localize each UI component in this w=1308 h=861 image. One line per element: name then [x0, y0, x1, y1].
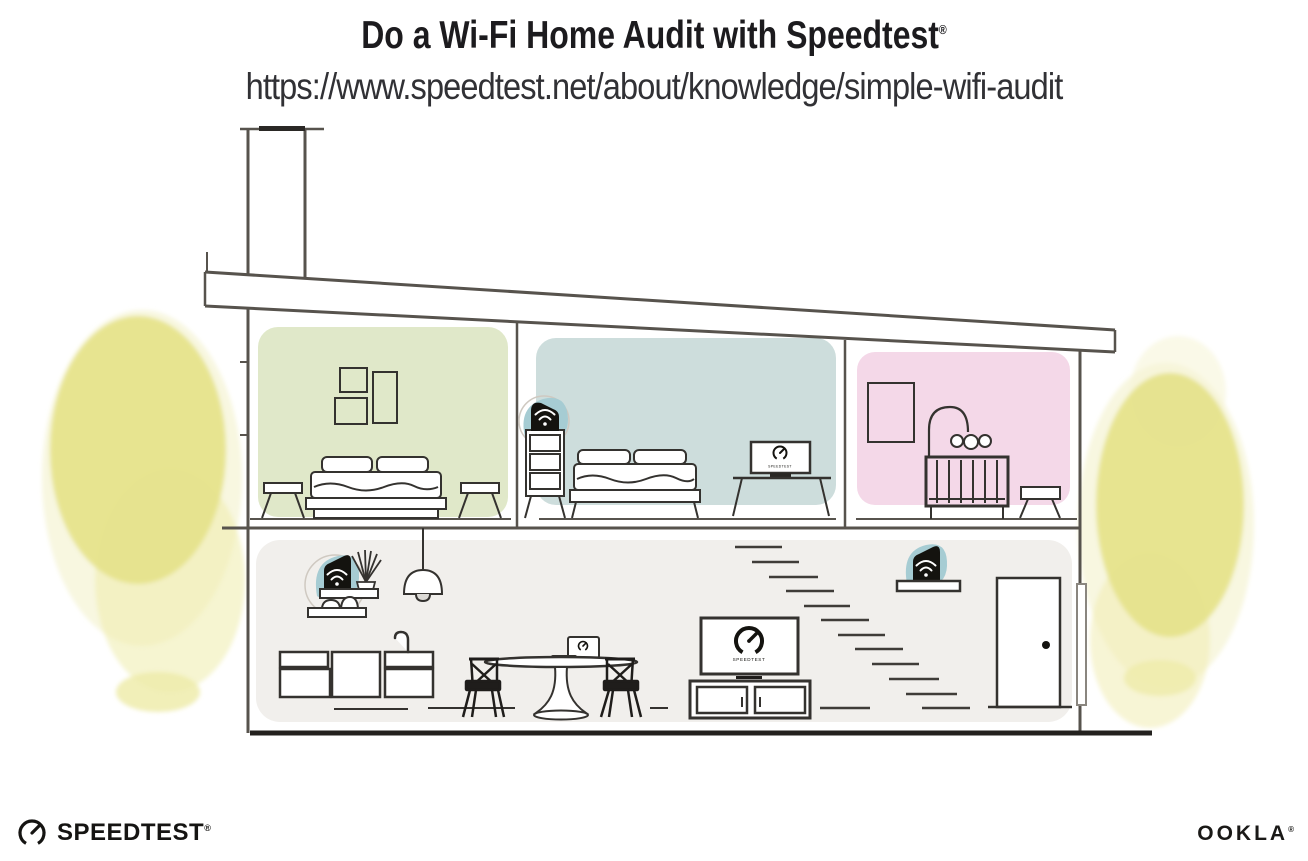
front-door	[988, 578, 1072, 707]
speedtest-wordmark: SPEEDTEST®	[57, 821, 211, 845]
speedtest-logo: SPEEDTEST®	[16, 817, 211, 849]
bowl	[322, 600, 340, 608]
bed	[570, 450, 700, 518]
tv: SPEEDTEST	[701, 618, 798, 679]
nursery-pink-wall	[857, 352, 1070, 505]
lower-shelf	[308, 608, 366, 617]
ookla-logo: OOKLA®	[1197, 823, 1294, 845]
house-cutaway-illustration: SPEEDTEST	[0, 0, 1308, 861]
shelf-board	[897, 581, 960, 591]
right-tree	[1078, 336, 1254, 728]
door-side-trim	[1077, 584, 1086, 705]
floors	[222, 519, 1080, 528]
chimney	[240, 126, 324, 279]
door-knob	[1042, 641, 1050, 649]
screen-label: SPEEDTEST	[733, 657, 766, 662]
registered-mark: ®	[204, 823, 211, 833]
infographic-canvas: Do a Wi-Fi Home Audit with Speedtest® ht…	[0, 0, 1308, 861]
left-tree	[42, 310, 245, 712]
bed	[306, 457, 446, 518]
screen-label: SPEEDTEST	[768, 465, 792, 469]
speedtest-gauge-icon	[16, 817, 48, 849]
registered-mark: ®	[1288, 825, 1294, 834]
media-console	[690, 681, 810, 718]
ookla-wordmark: OOKLA®	[1197, 822, 1294, 845]
bowl	[341, 597, 358, 608]
